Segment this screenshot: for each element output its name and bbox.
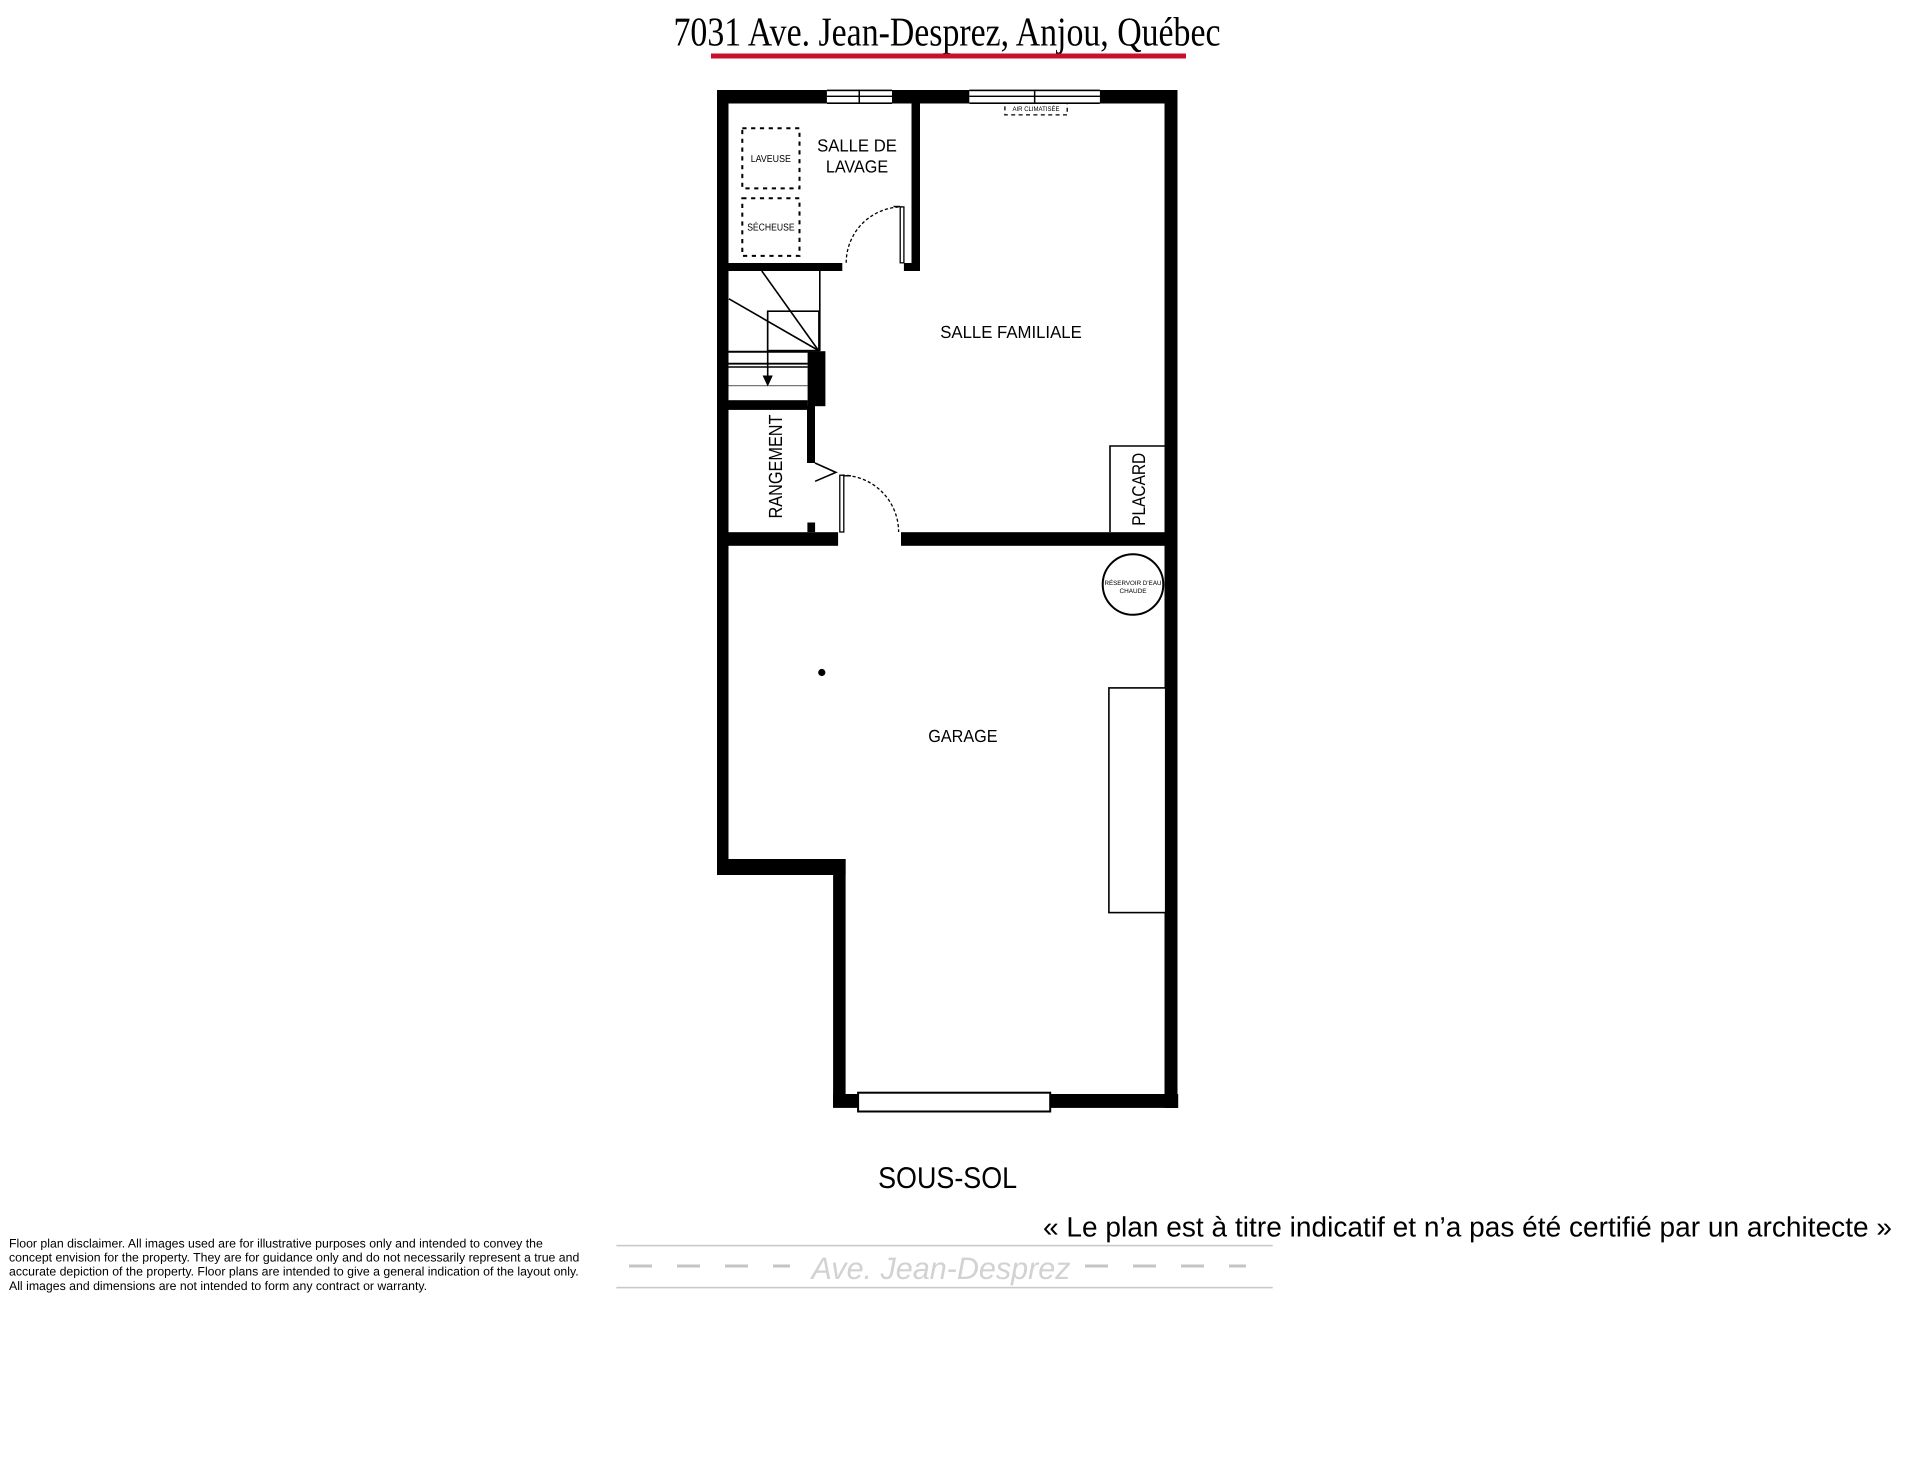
svg-text:7031 Ave. Jean-Desprez, Anjou,: 7031 Ave. Jean-Desprez, Anjou, Québec (674, 9, 1221, 55)
svg-text:RÉSERVOIR D’EAU: RÉSERVOIR D’EAU (1105, 579, 1162, 587)
svg-text:AIR CLIMATISÉE: AIR CLIMATISÉE (1013, 105, 1061, 113)
svg-text:accurate depiction of the prop: accurate depiction of the property. Floo… (9, 1265, 579, 1279)
svg-text:RANGEMENT: RANGEMENT (766, 414, 787, 518)
svg-text:SÉCHEUSE: SÉCHEUSE (747, 222, 795, 234)
svg-text:LAVEUSE: LAVEUSE (751, 154, 791, 165)
svg-text:SALLE FAMILIALE: SALLE FAMILIALE (940, 322, 1082, 342)
svg-text:GARAGE: GARAGE (928, 726, 997, 746)
svg-text:concept envision for the prope: concept envision for the property. They … (9, 1251, 579, 1265)
svg-text:Floor plan disclaimer. All ima: Floor plan disclaimer. All images used a… (9, 1236, 543, 1250)
svg-text:SALLE DE: SALLE DE (817, 136, 897, 156)
svg-text:All images and dimensions are: All images and dimensions are not intend… (9, 1279, 427, 1293)
svg-text:LAVAGE: LAVAGE (826, 156, 888, 176)
svg-text:CHAUDE: CHAUDE (1120, 588, 1147, 595)
svg-text:PLACARD: PLACARD (1128, 453, 1149, 526)
svg-text:SOUS-SOL: SOUS-SOL (878, 1162, 1017, 1195)
svg-text:Ave. Jean-Desprez: Ave. Jean-Desprez (810, 1251, 1071, 1286)
svg-text:« Le plan est à titre indicati: « Le plan est à titre indicatif et n’a p… (1043, 1212, 1892, 1243)
